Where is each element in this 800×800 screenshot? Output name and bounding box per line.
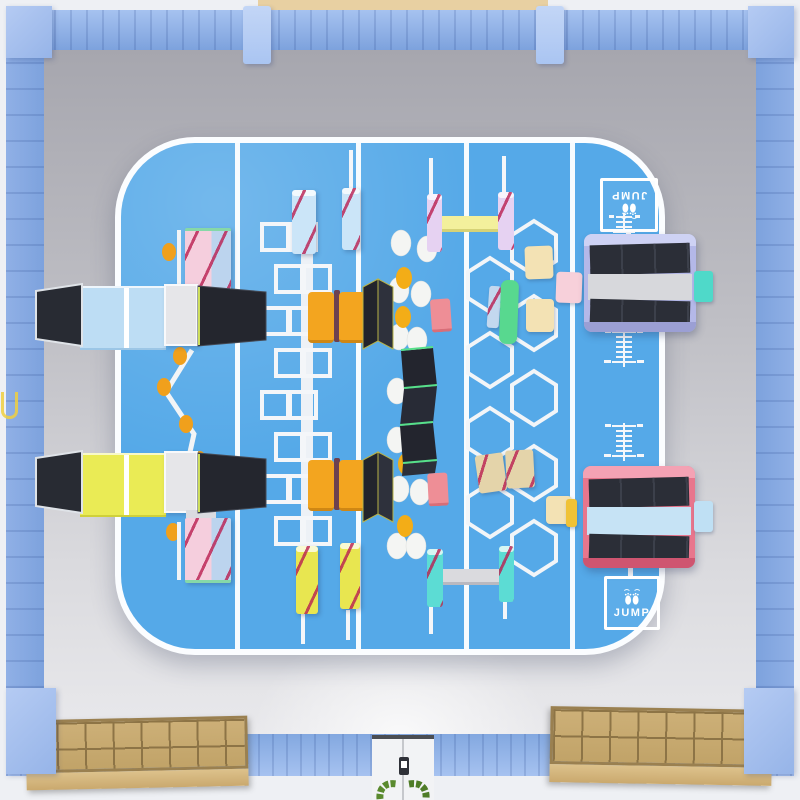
trampoline-panel [590, 243, 691, 276]
door-handle [399, 757, 409, 775]
shoe-cubby-right [549, 706, 772, 786]
pad-light-blue [694, 501, 713, 532]
mat-divider [124, 455, 129, 515]
pillar-top-right [536, 6, 564, 64]
pad-wedge-tan-2 [505, 449, 535, 488]
pad-teal [694, 271, 713, 302]
frame-bottom-strip [584, 322, 696, 332]
mat-divider [124, 288, 129, 348]
entrance-double-door [372, 735, 434, 800]
tower-base [186, 510, 216, 518]
vault-block-orange [339, 292, 365, 343]
vault-block-orange [308, 460, 334, 511]
padded-post-yellow-2 [340, 543, 360, 609]
frame-bottom-strip [583, 558, 695, 568]
footprints-icon [617, 202, 641, 221]
vault-block-orange [339, 460, 365, 511]
padded-post-light-blue-1 [292, 190, 316, 254]
frame-center-platform [588, 274, 692, 300]
wall-hook [1, 392, 18, 419]
trampoline-panel [589, 477, 690, 509]
pad-yellow-small [566, 499, 577, 527]
trampoline-park-top-view: JUMP JUMP [0, 0, 800, 800]
tower-pole [177, 230, 181, 290]
shoe-cubby-left [25, 716, 248, 791]
door-handle-plate [401, 761, 407, 768]
climbing-tower-bottom [185, 518, 231, 583]
jump-sign-label: JUMP [614, 607, 651, 619]
padded-post-cyan-2 [499, 546, 514, 602]
wall-top [6, 10, 794, 50]
mat-light-blue [80, 286, 166, 350]
cubby-grid [550, 706, 773, 768]
padded-post-lavender-2 [498, 192, 514, 250]
cubby-front [26, 769, 248, 791]
wall-left [6, 10, 44, 736]
landing-mat-pink-top [430, 298, 452, 332]
jump-sign-label: JUMP [611, 189, 648, 201]
pad-green [499, 280, 519, 345]
platform-box-gray [164, 284, 198, 346]
wall-trampoline-top [584, 234, 696, 332]
wall-corner-bottom-left [6, 688, 56, 774]
lane-line-1 [235, 143, 240, 649]
wall-corner-bottom-right [744, 688, 794, 774]
pad-pink [555, 272, 582, 304]
wall-corner-top-left [6, 6, 52, 58]
vault-block-orange [308, 292, 334, 343]
wall-corner-top-right [748, 6, 794, 58]
pad-cream-1 [524, 246, 553, 280]
pillar-top-left [243, 6, 271, 64]
mat-yellow [80, 453, 166, 517]
balance-beam-gray [438, 569, 504, 585]
pad-wedge-tan-1 [474, 452, 507, 494]
padded-post-lavender-1 [427, 194, 442, 252]
padded-post-yellow-1 [296, 546, 318, 614]
platform-box-gray [164, 451, 198, 513]
cubby-grid [25, 716, 248, 774]
jump-sign-bottom: JUMP [604, 576, 660, 630]
cubby-front [549, 764, 771, 786]
wall-right [756, 10, 794, 736]
frame-center-platform [587, 507, 691, 535]
padded-post-light-blue-2 [342, 188, 360, 250]
padded-post-cyan-1 [427, 549, 443, 607]
lane-line-4 [570, 143, 575, 649]
balance-beam-yellow [437, 216, 503, 232]
jump-sign-top: JUMP [600, 178, 658, 232]
landing-mat-pink-bottom [427, 472, 449, 506]
tower-pole [177, 522, 181, 580]
pad-cream-2 [526, 299, 554, 332]
footprints-icon [620, 587, 644, 606]
wall-trampoline-bottom [583, 466, 695, 568]
